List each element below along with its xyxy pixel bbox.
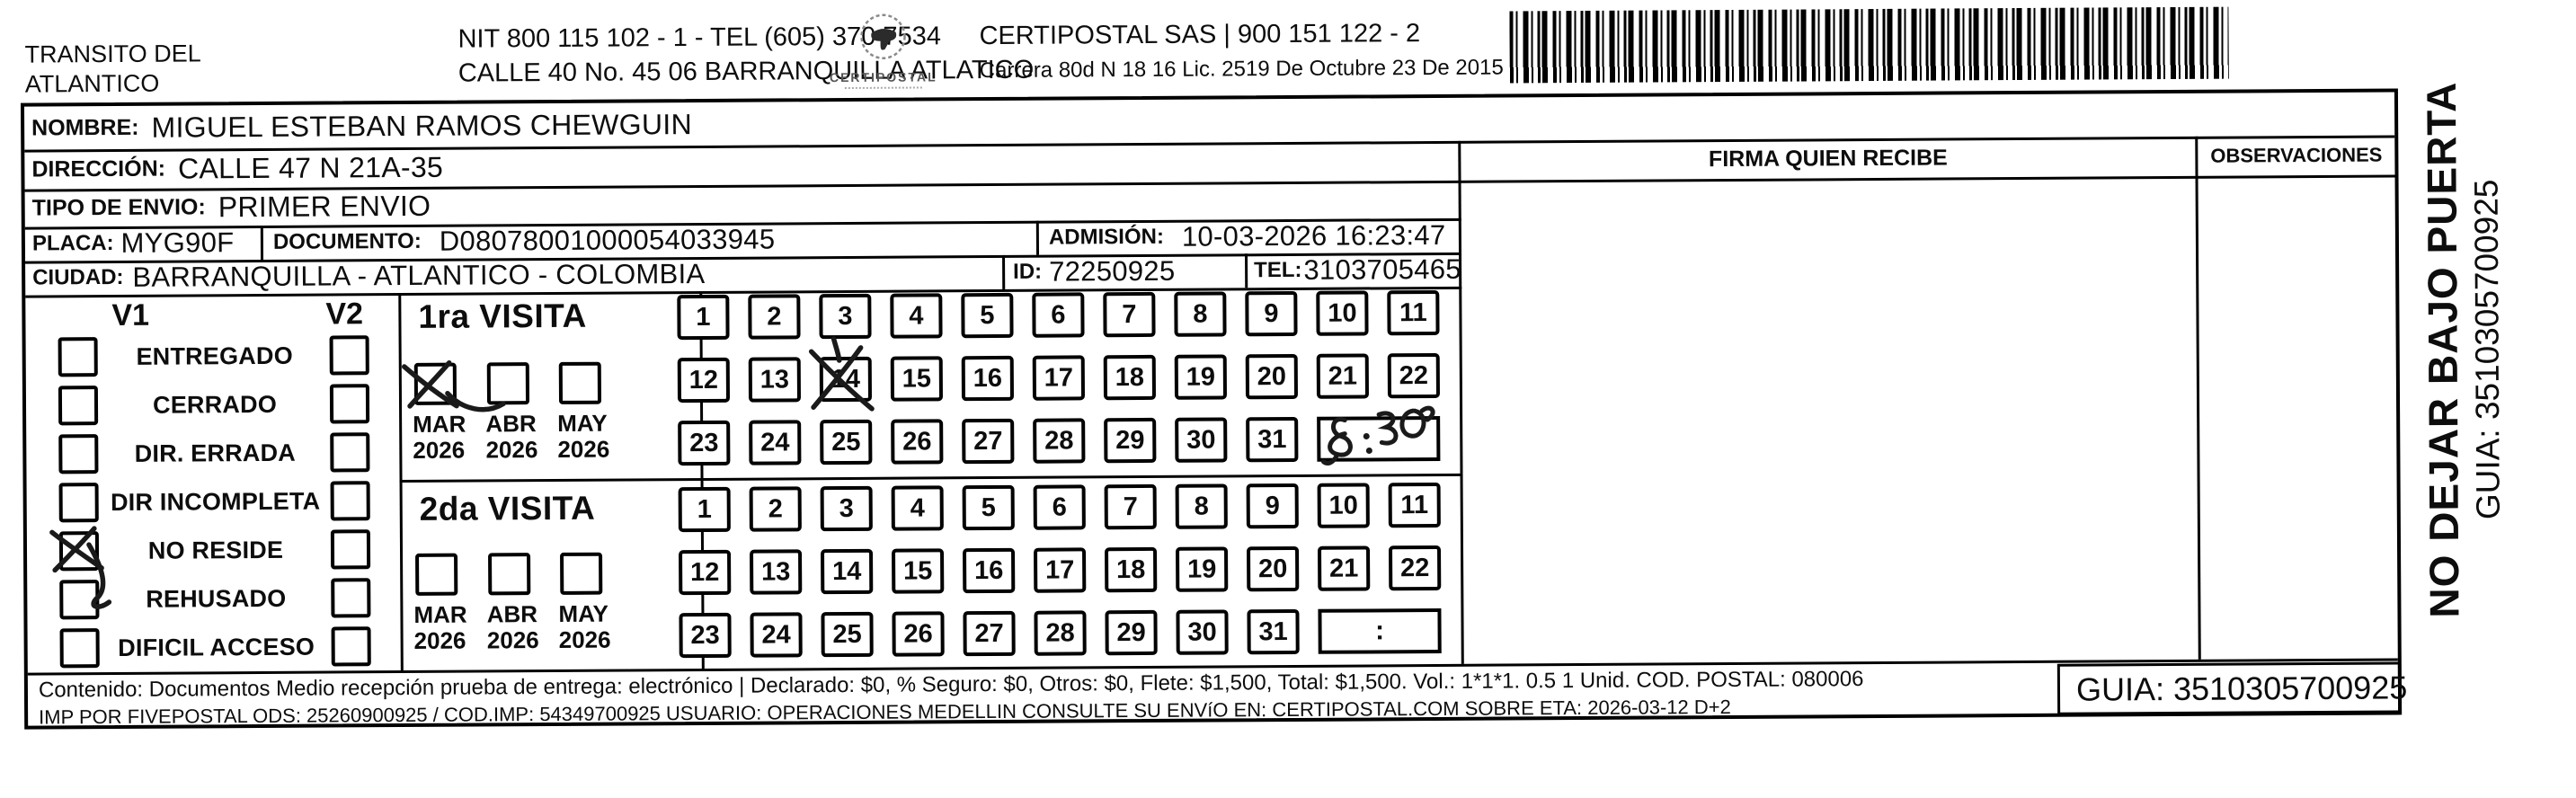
cell-id: ID: 72250925	[1002, 253, 1245, 289]
v1-checkbox-dir-errada	[58, 434, 98, 474]
v1-checkbox-entregado	[58, 337, 98, 377]
v2-checkbox-entregado	[330, 335, 369, 375]
first-visit-month-option: MAY 2026	[557, 362, 610, 463]
second-visit-month-option: ABR 2026	[486, 553, 539, 653]
tipo-envio-label: TIPO DE ENVIO:	[32, 194, 206, 221]
first-visit-day-29: 29	[1104, 418, 1156, 463]
second-visit-day-16: 16	[963, 548, 1015, 593]
barcode	[1509, 7, 2228, 84]
first-visit-day-26: 26	[891, 419, 943, 464]
observaciones-header: OBSERVACIONES	[2198, 135, 2394, 175]
cell-placa: PLACA: MYG90F	[25, 226, 261, 262]
admision-label: ADMISIÓN:	[1049, 225, 1164, 251]
firma-signature-area	[1461, 179, 2198, 664]
v2-checkbox-dificil-acceso	[332, 626, 371, 666]
v1-checkbox-cerrado	[58, 386, 98, 425]
cell-admision: ADMISIÓN: 10-03-2026 16:23:47	[1036, 218, 1459, 255]
first-visit-day-19: 19	[1175, 354, 1227, 399]
second-visit-day-6: 6	[1034, 484, 1086, 529]
first-visit-day-24: 24	[749, 420, 801, 465]
placa-label: PLACA:	[32, 231, 114, 257]
second-visit-day-25: 25	[821, 612, 873, 657]
second-visit-month-option: MAY 2026	[558, 553, 611, 653]
second-visit-day-2: 2	[750, 486, 802, 531]
first-visit-day-12: 12	[678, 358, 730, 403]
direccion-label: DIRECCIÓN:	[31, 155, 165, 182]
v1-checkbox-rehusado	[59, 580, 99, 619]
status-row-no-reside: NO RESIDE	[32, 525, 394, 575]
second-visit-day-7: 7	[1105, 484, 1157, 529]
first-visit-day-11: 11	[1387, 290, 1439, 335]
status-row-cerrado: CERRADO	[31, 379, 393, 430]
second-visit-day-21: 21	[1318, 545, 1370, 590]
logo-tagline-fineprint	[845, 86, 922, 92]
first-visit-day-27: 27	[962, 419, 1014, 464]
second-visit-day-grid: 1234567891011121314151617181920212223242…	[679, 483, 1442, 658]
status-option-label: NO RESIDE	[101, 536, 331, 565]
v1-checkbox-dir-incompleta	[59, 483, 99, 522]
second-visit-day-13: 13	[750, 549, 802, 594]
first-visit-month-option: ABR 2026	[485, 362, 538, 463]
v1-column-header: V1	[111, 298, 149, 333]
second-visit-day-24: 24	[750, 612, 802, 657]
first-visit-day-18: 18	[1104, 355, 1156, 400]
no-dejar-bajo-puerta-warning: NO DEJAR BAJO PUERTA	[2417, 71, 2469, 628]
first-visit-day-25: 25	[820, 420, 872, 465]
v2-checkbox-no-reside	[331, 529, 370, 569]
second-visit-day-15: 15	[892, 548, 944, 593]
second-visit-day-11: 11	[1389, 483, 1441, 528]
first-visit-day-20: 20	[1246, 354, 1298, 399]
first-visit-day-15: 15	[891, 356, 943, 401]
second-visit-day-18: 18	[1105, 547, 1157, 592]
second-visit-day-30: 30	[1176, 609, 1228, 654]
operator-address-license: Carrera 80d N 18 16 Lic. 2519 De Octubre…	[980, 56, 1504, 84]
id-label: ID:	[1013, 260, 1042, 285]
second-visit-month-checkbox-abr	[488, 553, 530, 595]
operator-name: CERTIPOSTAL SAS | 900 151 122 - 2	[979, 19, 1420, 51]
status-option-label: CERRADO	[100, 390, 330, 420]
first-visit-months: MAR 2026ABR 2026MAY 2026	[413, 362, 610, 464]
status-option-label: DIR INCOMPLETA	[101, 487, 331, 517]
cell-tel: TEL: 3103705465	[1245, 253, 1459, 288]
second-visit-day-14: 14	[821, 549, 873, 594]
second-visit-months: MAR 2026ABR 2026MAY 2026	[413, 553, 611, 654]
first-visit-day-1: 1	[677, 295, 729, 340]
second-visit-day-9: 9	[1247, 483, 1299, 528]
status-option-label: ENTREGADO	[100, 341, 330, 371]
side-guia-number: GUIA: 3510305700925	[2467, 71, 2509, 628]
status-row-rehusado: REHUSADO	[32, 573, 394, 624]
second-visit-day-17: 17	[1034, 547, 1086, 592]
tel-label: TEL:	[1254, 258, 1301, 283]
v2-column-header: V2	[325, 297, 363, 332]
first-visit-day-grid: 1234567891011121314151617181920212223242…	[677, 290, 1440, 465]
first-visit-day-13: 13	[749, 357, 801, 402]
second-visit-title: 2da VISITA	[420, 490, 596, 528]
second-visit-day-5: 5	[963, 485, 1015, 530]
cell-documento: DOCUMENTO: D08078001000054033945	[261, 221, 1036, 260]
first-visit-day-8: 8	[1174, 291, 1226, 336]
label-main-table: NOMBRE: MIGUEL ESTEBAN RAMOS CHEWGUIN DI…	[21, 88, 2402, 729]
first-visit-day-17: 17	[1033, 355, 1085, 400]
second-visit-month-option: MAR 2026	[413, 554, 467, 654]
nombre-value: MIGUEL ESTEBAN RAMOS CHEWGUIN	[151, 108, 692, 145]
first-visit-time-box	[1317, 416, 1440, 462]
divider-h-visits	[400, 474, 1463, 483]
status-row-dificil-acceso: DIFICIL ACCESO	[33, 622, 395, 672]
guia-number-box: GUIA: 3510305700925	[2057, 661, 2401, 714]
cell-ciudad: CIUDAD: BARRANQUILLA - ATLANTICO - COLOM…	[25, 255, 1002, 296]
first-visit-title: 1ra VISITA	[418, 297, 587, 336]
first-visit-month-option: MAR 2026	[413, 363, 466, 464]
status-row-entregado: ENTREGADO	[31, 331, 393, 381]
status-option-label: DIFICIL ACCESO	[102, 633, 332, 662]
second-visit-day-26: 26	[892, 611, 944, 656]
second-visit-month-checkbox-mar	[415, 554, 457, 596]
v2-checkbox-rehusado	[331, 578, 370, 617]
first-visit-day-7: 7	[1103, 292, 1155, 337]
direccion-value: CALLE 47 N 21A-35	[178, 150, 443, 185]
status-option-label: REHUSADO	[101, 584, 331, 614]
first-visit-day-10: 10	[1316, 290, 1368, 335]
second-visit-day-20: 20	[1247, 546, 1299, 591]
admision-value: 10-03-2026 16:23:47	[1182, 219, 1446, 253]
sender-name: TRANSITO DEL ATLANTICO	[25, 39, 201, 99]
first-visit-day-31: 31	[1246, 417, 1298, 462]
second-visit-day-31: 31	[1247, 609, 1299, 654]
second-visit-day-19: 19	[1176, 546, 1228, 591]
scanned-shipping-label: TRANSITO DEL ATLANTICO NIT 800 115 102 -…	[0, 0, 2576, 798]
second-visit-day-1: 1	[679, 487, 731, 532]
documento-label: DOCUMENTO:	[273, 229, 422, 255]
first-visit-day-16: 16	[962, 356, 1014, 401]
second-visit-day-27: 27	[963, 611, 1015, 656]
certipostal-logo: CERTIPOSTAL	[815, 13, 951, 92]
ciudad-value: BARRANQUILLA - ATLANTICO - COLOMBIA	[132, 258, 705, 294]
second-visit-day-10: 10	[1318, 483, 1370, 528]
first-visit-month-checkbox-abr	[487, 362, 529, 404]
id-value: 72250925	[1049, 255, 1176, 288]
first-visit-day-30: 30	[1175, 417, 1227, 462]
status-options: ENTREGADOCERRADODIR. ERRADADIR INCOMPLET…	[31, 331, 395, 672]
placa-value: MYG90F	[120, 226, 234, 260]
first-visit-day-3: 3	[819, 294, 871, 339]
firma-quien-recibe-header: FIRMA QUIEN RECIBE	[1461, 137, 2195, 181]
first-visit-month-label: MAY 2026	[557, 411, 609, 463]
tipo-envio-value: PRIMER ENVIO	[218, 189, 431, 223]
nombre-label: NOMBRE:	[31, 114, 139, 141]
first-visit-day-14: 14	[820, 357, 872, 402]
v2-checkbox-dir-incompleta	[331, 481, 370, 520]
status-row-dir-errada: DIR. ERRADA	[31, 428, 393, 478]
first-visit-day-23: 23	[678, 421, 730, 465]
logo-name: CERTIPOSTAL	[816, 69, 951, 84]
v1-checkbox-dificil-acceso	[60, 628, 100, 668]
second-visit-time-box: :	[1318, 608, 1441, 654]
v1-checkbox-no-reside	[59, 531, 99, 571]
v2-checkbox-cerrado	[330, 384, 369, 423]
first-visit-month-checkbox-mar	[414, 363, 457, 405]
second-visit-day-29: 29	[1105, 610, 1157, 655]
first-visit-day-4: 4	[890, 293, 942, 338]
first-visit-month-label: ABR 2026	[485, 411, 537, 463]
first-visit-month-checkbox-may	[559, 362, 601, 404]
second-visit-day-22: 22	[1389, 545, 1441, 590]
first-visit-day-21: 21	[1317, 353, 1369, 398]
second-visit-month-label: MAR 2026	[413, 602, 467, 654]
observaciones-area	[2198, 177, 2398, 659]
second-visit-month-label: MAY 2026	[558, 601, 610, 653]
status-option-label: DIR. ERRADA	[100, 439, 330, 468]
side-label: NO DEJAR BAJO PUERTA GUIA: 3510305700925	[2417, 71, 2527, 629]
first-visit-day-6: 6	[1032, 292, 1084, 337]
first-visit-month-label: MAR 2026	[413, 412, 466, 464]
posthorn-logo-icon	[851, 13, 914, 64]
first-visit-day-22: 22	[1388, 353, 1440, 398]
documento-value: D08078001000054033945	[440, 223, 776, 257]
ciudad-label: CIUDAD:	[32, 265, 123, 291]
v2-checkbox-dir-errada	[330, 432, 369, 472]
tel-value: 3103705465	[1303, 253, 1461, 287]
second-visit-day-8: 8	[1176, 483, 1228, 528]
first-visit-day-2: 2	[748, 294, 800, 339]
second-visit-day-28: 28	[1034, 610, 1086, 655]
second-visit-month-checkbox-may	[560, 553, 602, 595]
second-visit-month-label: ABR 2026	[487, 601, 539, 653]
second-visit-day-23: 23	[679, 613, 731, 658]
first-visit-day-9: 9	[1245, 291, 1297, 336]
first-visit-day-28: 28	[1033, 418, 1085, 463]
status-row-dir-incompleta: DIR INCOMPLETA	[32, 476, 394, 527]
first-visit-day-5: 5	[961, 293, 1013, 338]
second-visit-day-3: 3	[821, 486, 873, 531]
second-visit-day-12: 12	[679, 550, 731, 595]
second-visit-day-4: 4	[892, 485, 944, 530]
